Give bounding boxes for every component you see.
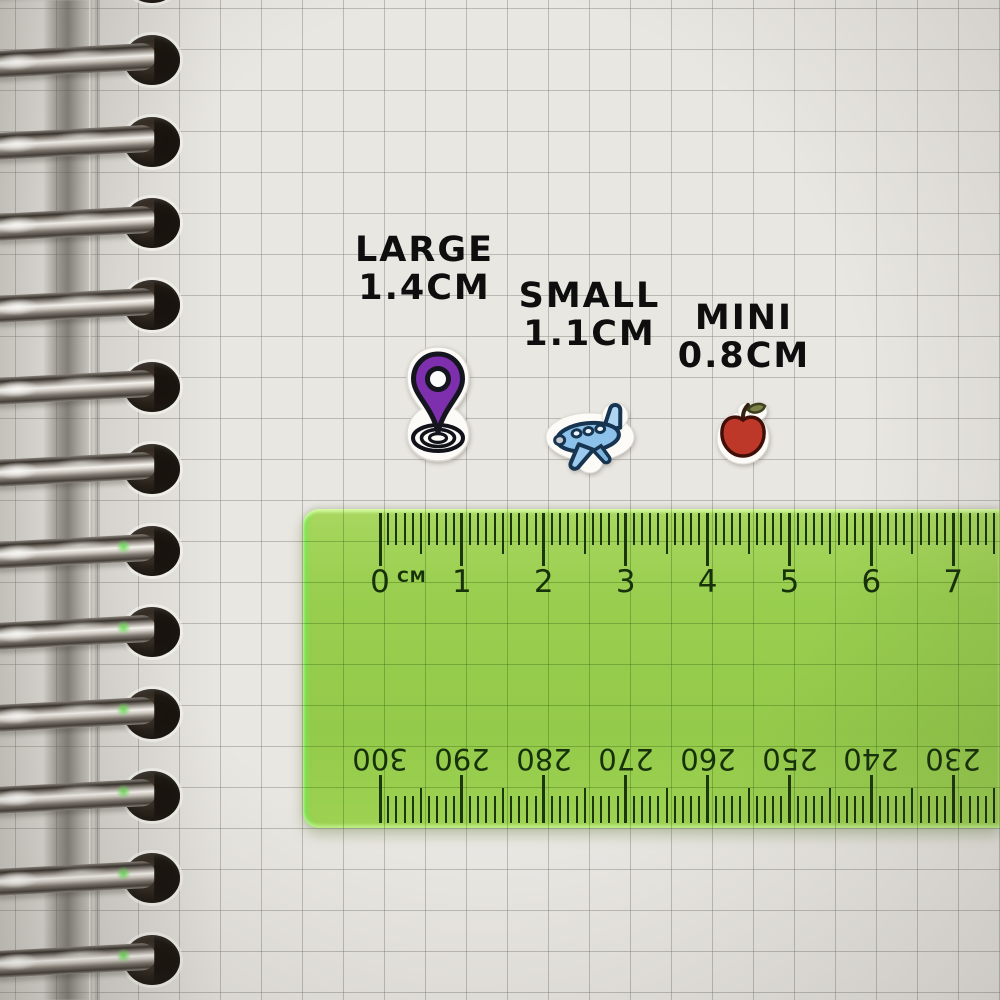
ruler-tick-bottom [617, 796, 619, 823]
ruler-tick-bottom [387, 796, 389, 823]
ruler-tick-top [510, 513, 512, 545]
ruler-tick-top [617, 513, 619, 545]
ruler-tick-top [797, 513, 799, 545]
size-label-small-size: 1.1CM [502, 316, 677, 354]
ruler-tick-top [494, 513, 496, 545]
ruler-tick-bottom [460, 775, 463, 823]
ruler-tick-bottom [895, 796, 897, 823]
ruler-tick-top [379, 513, 382, 566]
ruler-tick-top [518, 513, 520, 545]
ruler-tick-bottom [551, 796, 553, 823]
ruler-tick-top [608, 513, 610, 545]
ruler-mm-number: 230 [917, 742, 989, 776]
ruler-tick-top [576, 513, 578, 545]
size-label-large: LARGE 1.4CM [337, 232, 512, 308]
ruler-tick-top [624, 513, 627, 566]
ruler-tick-bottom [494, 796, 496, 823]
ruler-tick-bottom [379, 775, 382, 823]
ruler-tick-bottom [788, 775, 791, 823]
size-label-small: SMALL 1.1CM [502, 278, 677, 354]
ruler-tick-top [453, 513, 455, 545]
ruler-tick-bottom [657, 796, 659, 823]
ruler-tick-top [584, 513, 586, 554]
ruler-tick-bottom [960, 796, 962, 823]
ruler-cm-number: 5 [760, 564, 820, 600]
ruler-tick-top [862, 513, 864, 545]
ruler-tick-top [764, 513, 766, 545]
ruler-tick-top [387, 513, 389, 545]
ruler-tick-bottom [993, 788, 995, 823]
ruler-tick-bottom [731, 796, 733, 823]
ruler-tick-top [944, 513, 946, 545]
ruler-tick-bottom [723, 796, 725, 823]
ruler-tick-top [879, 513, 881, 545]
ruler-tick-bottom [510, 796, 512, 823]
ruler-tick-bottom [535, 796, 537, 823]
ruler-tick-bottom [477, 796, 479, 823]
ruler-tick-bottom [559, 796, 561, 823]
ruler-tick-bottom [846, 796, 848, 823]
ruler-tick-bottom [903, 796, 905, 823]
ruler-tick-top [600, 513, 602, 545]
ruler-mm-number: 280 [508, 742, 580, 776]
ruler-tick-bottom [682, 796, 684, 823]
ruler-tick-bottom [584, 788, 586, 823]
size-label-mini: MINI 0.8CM [658, 300, 830, 376]
ruler-tick-top [920, 513, 922, 545]
ruler-tick-bottom [756, 796, 758, 823]
ruler: CM 01234567300290280270260250240230 [303, 509, 1000, 828]
ruler-mm-number: 260 [672, 742, 744, 776]
ruler-tick-top [985, 513, 987, 545]
ruler-mm-number: 240 [835, 742, 907, 776]
ruler-tick-bottom [797, 796, 799, 823]
ring-green-reflection [116, 539, 131, 554]
ruler-tick-bottom [805, 796, 807, 823]
size-label-large-name: LARGE [337, 232, 512, 270]
ruler-tick-top [592, 513, 594, 545]
ruler-tick-bottom [518, 796, 520, 823]
ruler-mm-number: 290 [426, 742, 498, 776]
ruler-cm-number: 2 [514, 564, 574, 600]
ruler-tick-bottom [485, 796, 487, 823]
ruler-tick-top [460, 513, 463, 566]
ruler-tick-top [690, 513, 692, 545]
ruler-tick-bottom [436, 796, 438, 823]
ruler-tick-top [674, 513, 676, 545]
ruler-tick-top [977, 513, 979, 545]
ruler-tick-top [772, 513, 774, 545]
ruler-tick-top [739, 513, 741, 545]
ruler-tick-bottom [952, 775, 955, 823]
size-label-small-name: SMALL [502, 278, 677, 316]
ruler-translucent-grid [303, 509, 1000, 828]
ruler-tick-bottom [985, 796, 987, 823]
ruler-tick-bottom [600, 796, 602, 823]
ruler-tick-bottom [862, 796, 864, 823]
ruler-tick-top [887, 513, 889, 545]
apple-icon [722, 404, 765, 456]
ruler-tick-bottom [445, 796, 447, 823]
ruler-tick-bottom [887, 796, 889, 823]
ring-green-reflection [116, 784, 131, 799]
ruler-tick-top [436, 513, 438, 545]
ruler-tick-bottom [772, 796, 774, 823]
ruler-tick-bottom [412, 796, 414, 823]
ruler-tick-bottom [633, 796, 635, 823]
ruler-tick-top [928, 513, 930, 545]
ruler-tick-top [813, 513, 815, 545]
ruler-tick-bottom [977, 796, 979, 823]
size-label-large-size: 1.4CM [337, 270, 512, 308]
ruler-tick-top [526, 513, 528, 545]
ruler-tick-bottom [715, 796, 717, 823]
ruler-tick-bottom [624, 775, 627, 823]
location-pin-sticker [402, 345, 474, 463]
ruler-tick-top [854, 513, 856, 545]
ruler-tick-bottom [706, 775, 709, 823]
ruler-tick-top [706, 513, 709, 566]
ruler-tick-top [445, 513, 447, 545]
ruler-tick-bottom [911, 788, 913, 823]
ruler-mm-number: 270 [590, 742, 662, 776]
ruler-tick-bottom [469, 796, 471, 823]
ruler-tick-bottom [592, 796, 594, 823]
ruler-tick-bottom [821, 796, 823, 823]
ruler-tick-top [748, 513, 750, 554]
pin-hole [428, 369, 449, 390]
ruler-tick-bottom [838, 796, 840, 823]
ruler-tick-top [428, 513, 430, 545]
ruler-tick-top [846, 513, 848, 545]
ruler-tick-top [870, 513, 873, 566]
ruler-tick-bottom [748, 788, 750, 823]
ruler-tick-top [420, 513, 422, 554]
ruler-tick-bottom [829, 788, 831, 823]
ruler-tick-bottom [453, 796, 455, 823]
ruler-tick-bottom [404, 796, 406, 823]
ruler-tick-top [829, 513, 831, 554]
ruler-tick-bottom [969, 796, 971, 823]
ruler-cm-number: 1 [432, 564, 492, 600]
ruler-tick-bottom [641, 796, 643, 823]
ruler-tick-top [936, 513, 938, 545]
size-label-mini-size: 0.8CM [658, 338, 830, 376]
ruler-tick-bottom [674, 796, 676, 823]
ruler-tick-top [485, 513, 487, 545]
airplane-sticker [544, 399, 640, 475]
ruler-tick-top [535, 513, 537, 545]
ruler-tick-top [633, 513, 635, 545]
ruler-tick-bottom [764, 796, 766, 823]
ruler-tick-top [723, 513, 725, 545]
size-label-mini-name: MINI [658, 300, 830, 338]
ruler-tick-bottom [542, 775, 545, 823]
ruler-tick-top [838, 513, 840, 545]
ruler-cm-number: 6 [841, 564, 901, 600]
ruler-cm-number: 4 [678, 564, 738, 600]
ruler-mm-number: 300 [344, 742, 416, 776]
ruler-tick-top [788, 513, 791, 566]
ruler-tick-top [551, 513, 553, 545]
ruler-tick-top [395, 513, 397, 545]
ruler-tick-top [698, 513, 700, 545]
ruler-tick-top [895, 513, 897, 545]
ruler-tick-top [960, 513, 962, 545]
ruler-tick-bottom [567, 796, 569, 823]
ruler-tick-top [542, 513, 545, 566]
ruler-tick-bottom [879, 796, 881, 823]
ruler-tick-top [412, 513, 414, 545]
ruler-tick-top [641, 513, 643, 545]
ruler-tick-top [477, 513, 479, 545]
ruler-tick-bottom [576, 796, 578, 823]
ring-green-reflection [116, 948, 131, 963]
ruler-tick-bottom [936, 796, 938, 823]
ruler-tick-bottom [739, 796, 741, 823]
ruler-tick-bottom [608, 796, 610, 823]
ruler-tick-top [559, 513, 561, 545]
ruler-tick-bottom [698, 796, 700, 823]
ruler-tick-bottom [854, 796, 856, 823]
ruler-tick-bottom [928, 796, 930, 823]
ruler-tick-top [780, 513, 782, 545]
ruler-tick-bottom [502, 788, 504, 823]
ruler-cm-number: 0 [350, 564, 410, 600]
ruler-tick-bottom [690, 796, 692, 823]
ruler-tick-bottom [526, 796, 528, 823]
ruler-cm-number: 7 [923, 564, 983, 600]
ruler-tick-top [682, 513, 684, 545]
ruler-tick-top [404, 513, 406, 545]
ruler-tick-top [952, 513, 955, 566]
ruler-tick-bottom [813, 796, 815, 823]
ruler-mm-number: 250 [754, 742, 826, 776]
ruler-tick-top [715, 513, 717, 545]
ruler-tick-top [993, 513, 995, 554]
ruler-tick-bottom [428, 796, 430, 823]
ruler-tick-bottom [944, 796, 946, 823]
ruler-tick-top [821, 513, 823, 545]
ruler-tick-top [502, 513, 504, 554]
ruler-tick-top [911, 513, 913, 554]
notebook-photo: LARGE 1.4CM SMALL 1.1CM MINI 0.8CM [0, 0, 1000, 1000]
ruler-tick-bottom [666, 788, 668, 823]
ruler-tick-top [469, 513, 471, 545]
ruler-tick-top [969, 513, 971, 545]
ruler-tick-bottom [780, 796, 782, 823]
ruler-tick-top [657, 513, 659, 545]
ruler-tick-top [666, 513, 668, 554]
ruler-tick-top [903, 513, 905, 545]
ruler-tick-top [649, 513, 651, 545]
ruler-tick-bottom [395, 796, 397, 823]
ruler-tick-bottom [420, 788, 422, 823]
ruler-tick-top [567, 513, 569, 545]
apple-sticker [711, 400, 777, 466]
ruler-tick-top [756, 513, 758, 545]
ruler-cm-number: 3 [596, 564, 656, 600]
ring-green-reflection [116, 866, 131, 881]
ruler-tick-top [805, 513, 807, 545]
ruler-tick-bottom [649, 796, 651, 823]
ruler-tick-top [731, 513, 733, 545]
ruler-tick-bottom [870, 775, 873, 823]
ruler-tick-bottom [920, 796, 922, 823]
